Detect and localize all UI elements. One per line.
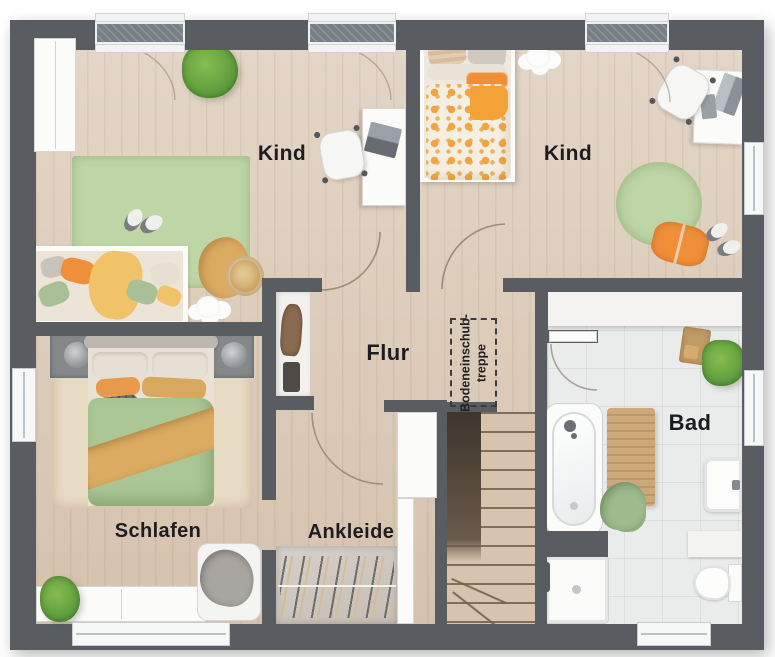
- pillow: [155, 283, 184, 309]
- double-bed: [86, 334, 216, 508]
- coat: [279, 303, 304, 356]
- wall-niche-south: [262, 396, 314, 410]
- outer-wall-left: [10, 20, 36, 650]
- window-schlafen-west: [12, 368, 36, 442]
- room-label-kind-left: Kind: [240, 142, 324, 166]
- shower-drain: [572, 585, 581, 594]
- staircase: [447, 412, 535, 624]
- floor-plan: Kind Kind: [0, 0, 775, 657]
- wall-kind-divider: [406, 50, 420, 292]
- bathroom-door-leaf: [549, 331, 597, 342]
- outer-wall-right: [742, 20, 764, 650]
- stair-winder-line: [451, 578, 507, 604]
- wall-kindright-south: [503, 278, 742, 292]
- pillow: [150, 261, 181, 287]
- skylight-window: [308, 22, 396, 44]
- toilet: [694, 562, 742, 604]
- skylight-window: [95, 22, 185, 44]
- skylight-frame: [308, 44, 396, 53]
- wardrobe: [34, 38, 76, 152]
- plant: [182, 42, 238, 98]
- cloud-rug: [196, 296, 220, 318]
- window-bad-east: [744, 370, 764, 446]
- blanket-fold: [470, 86, 508, 120]
- window-kind-east: [744, 142, 764, 215]
- ankleide-door-leaf: [397, 412, 437, 498]
- nightstand: [212, 332, 254, 378]
- desk: [362, 108, 406, 206]
- room-label-kind-right: Kind: [526, 142, 610, 166]
- attic-hatch-outline: Bodeneinschub- treppe: [450, 318, 497, 407]
- bath-drain: [570, 502, 578, 510]
- window-bad-south: [637, 622, 711, 646]
- child-bed: [420, 30, 515, 182]
- room-label-schlafen: Schlafen: [110, 520, 206, 543]
- wardrobe-divider: [55, 41, 56, 149]
- wall-schlafen-north: [36, 322, 262, 336]
- toilet-partition: [688, 531, 742, 557]
- pillow: [152, 352, 208, 378]
- duvet: [88, 398, 214, 506]
- laptop: [364, 122, 402, 159]
- pillow: [142, 376, 207, 399]
- room-label-bad: Bad: [660, 410, 720, 436]
- plant: [40, 576, 80, 622]
- tall-wardrobe: [397, 498, 414, 624]
- bath-cabinet: [548, 292, 742, 326]
- skylight-sill: [95, 13, 185, 22]
- bathtub: [546, 404, 602, 534]
- stored-item: [283, 362, 300, 392]
- blanket: [88, 402, 214, 489]
- wall-spine-upper: [262, 278, 276, 500]
- child-bed: [30, 246, 188, 326]
- room-label-ankleide: Ankleide: [303, 521, 399, 544]
- closet-rail: [278, 585, 396, 587]
- wall-kindleft-south-stub: [262, 278, 322, 292]
- toilet-bowl: [694, 566, 730, 600]
- coat-niche: [276, 292, 310, 396]
- skylight-frame: [585, 44, 669, 53]
- shower: [546, 557, 608, 623]
- pillow: [36, 279, 72, 310]
- wall-shower-niche: [547, 531, 608, 557]
- attic-hatch-label: Bodeneinschub- treppe: [458, 314, 489, 412]
- basin-faucet: [732, 480, 740, 490]
- clothes-hangers: [280, 556, 394, 618]
- slippers: [126, 208, 166, 238]
- room-label-flur: Flur: [346, 340, 430, 366]
- closet-rail-area: [276, 546, 398, 624]
- skylight-window: [585, 22, 669, 44]
- bath-faucet: [564, 420, 576, 432]
- skylight-sill: [585, 13, 669, 22]
- gray-throw: [196, 546, 259, 611]
- toilet-tank: [728, 564, 742, 602]
- window-schlafen-south: [72, 622, 230, 646]
- skylight-sill: [308, 13, 396, 22]
- skylight-frame: [95, 44, 185, 53]
- pillow: [92, 352, 148, 378]
- shower-fixture: [538, 562, 550, 592]
- washbasin: [704, 458, 742, 512]
- wall-spine-lower: [262, 550, 276, 624]
- green-towels: [600, 482, 646, 530]
- armchair: [198, 544, 260, 620]
- wicker-basket: [226, 256, 264, 296]
- stair-void: [447, 412, 481, 562]
